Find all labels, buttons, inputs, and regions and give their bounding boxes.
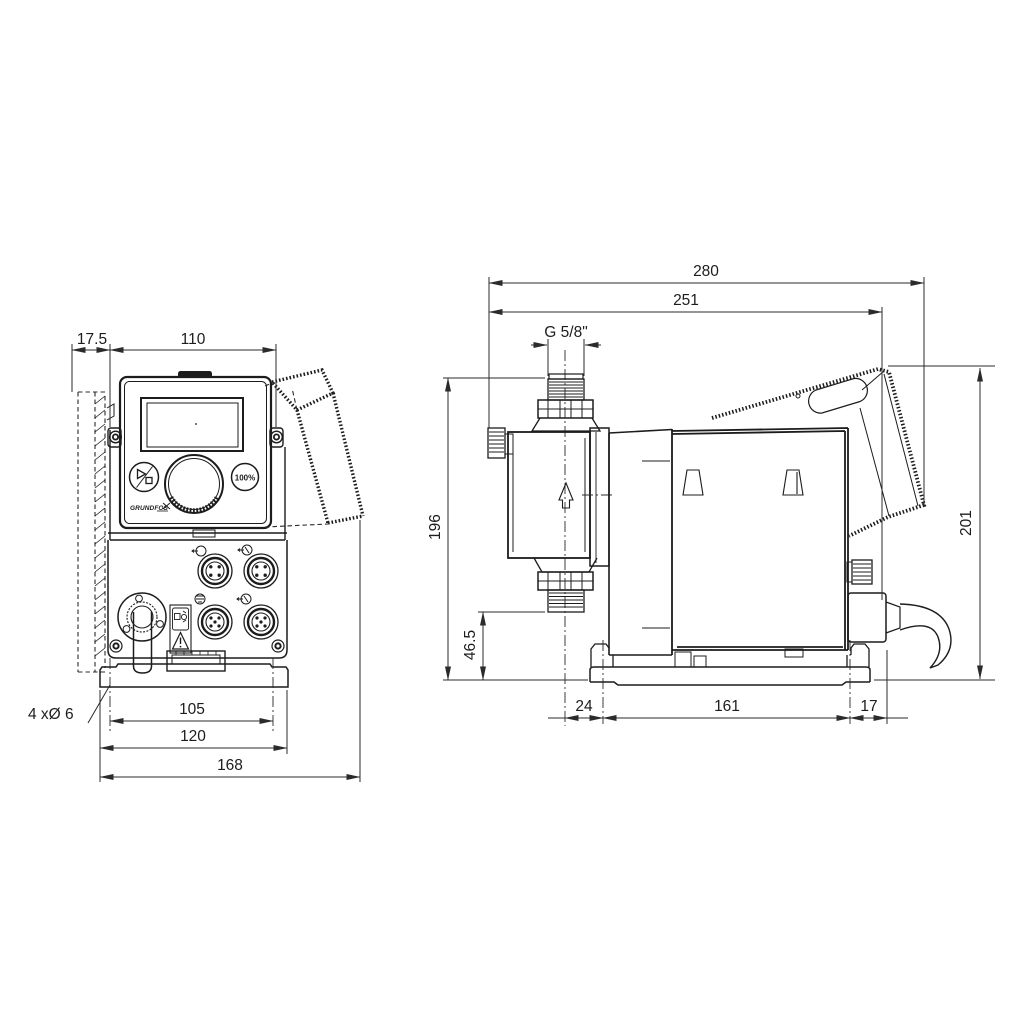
dim-overall-width-label: 168 [217,757,243,774]
dim-plate-width-label: 120 [180,728,206,745]
cable-gland-side [847,560,951,668]
dim-height-to-top-valve-label: 196 [427,514,444,540]
top-valve-fitting [532,374,600,431]
connector-face [108,540,287,673]
grundfos-logo: GRUNDFOS [130,503,170,512]
mounting-plate-front [100,658,288,733]
click-wheel [165,455,223,513]
control-panel: 100% GRUNDFOS [120,371,271,528]
boost-button: 100% [232,464,259,491]
m12-connector-2 [244,554,278,588]
display [141,398,243,451]
holes-label: 4 xØ 6 [28,706,74,723]
m12-connector-4 [244,605,278,639]
dim-overall-height-label: 201 [958,510,975,536]
control-cube-rotated-dashed [265,370,363,527]
dim-base-to-bottom-valve-label: 46.5 [462,630,479,660]
start-stop-icon [137,467,153,488]
front-view: 100% GRUNDFOS [28,331,363,782]
boost-button-label: 100% [235,474,255,483]
dim-hole-to-rear-label: 17 [860,698,877,715]
dosing-head [488,428,612,572]
pump-body-side [609,428,848,655]
warning-label [170,605,191,653]
bottom-clip [167,651,225,671]
dim-front-to-hole-label: 24 [575,698,593,715]
technical-drawing-page: 100% GRUNDFOS [0,0,1024,1024]
control-cube-side [712,369,924,536]
bottom-valve-fitting [538,572,593,612]
start-stop-button [130,463,159,492]
m12-connector-3 [198,605,232,639]
warning-triangle-icon [173,633,189,650]
pump-dimensional-drawing: 100% GRUNDFOS [0,0,1024,1024]
dim-panel-width-label: 110 [181,331,206,348]
side-view: 280 251 G 5/8" 196 46.5 201 24 161 17 [427,263,995,726]
dim-hole-spacing-label: 105 [179,701,205,718]
flow-arrow-icon [559,483,573,508]
panel-top-tab [178,371,212,378]
mounting-ears [108,428,283,447]
cable-side [900,604,951,668]
cable-gland [118,593,166,673]
dim-depth-to-rear-label: 251 [673,292,699,309]
dim-wall-offset-label: 17.5 [77,331,107,348]
dim-overall-depth-label: 280 [693,263,719,280]
side-dimensions: 280 251 G 5/8" 196 46.5 201 24 161 17 [427,263,995,724]
dim-hole-spacing-side-label: 161 [714,698,740,715]
thread-size-label: G 5/8" [544,324,587,341]
connector-icons [192,545,252,604]
m12-connector-1 [198,554,232,588]
cube-handle-slot [809,378,868,413]
plug-icon [175,611,187,622]
